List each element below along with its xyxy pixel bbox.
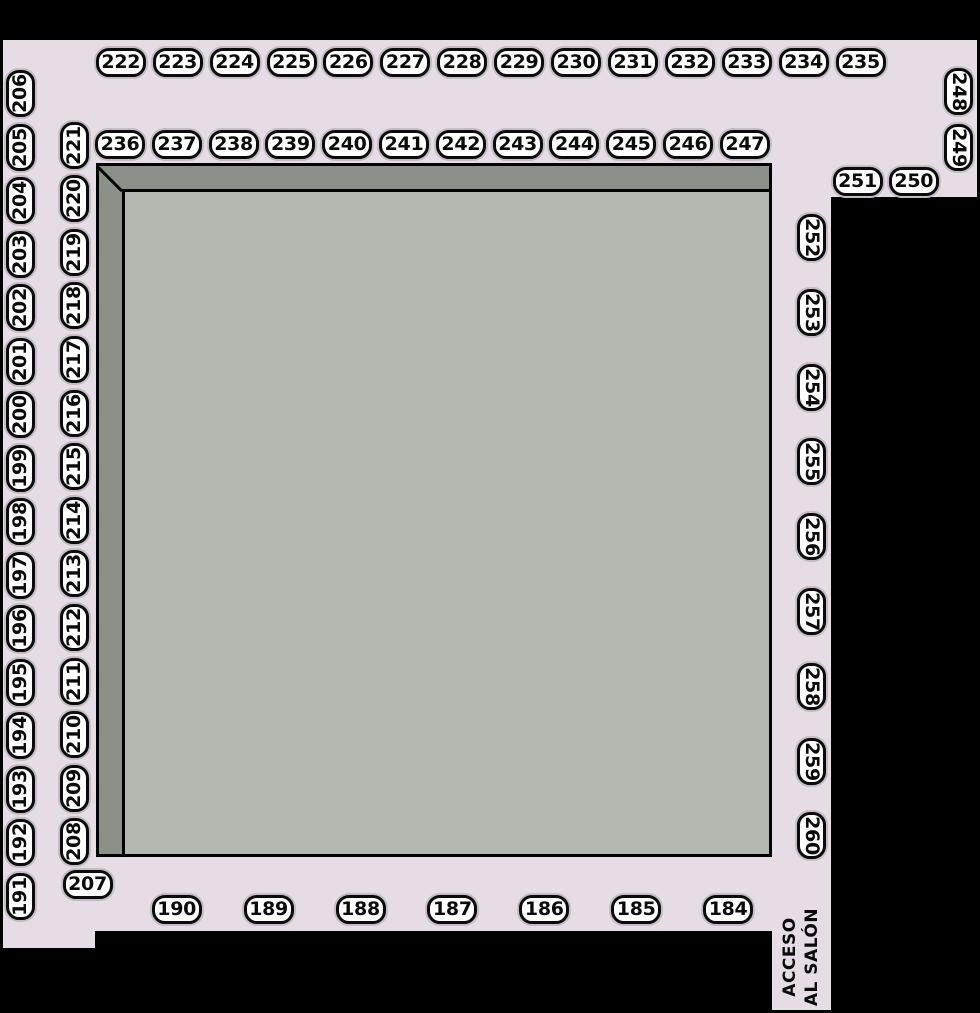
booth-212[interactable]: 212: [60, 604, 89, 651]
booth-241[interactable]: 241: [379, 130, 429, 159]
booth-label: 194: [11, 716, 30, 755]
booth-192[interactable]: 192: [6, 819, 35, 866]
access-label-line-1: ACCESO: [779, 897, 801, 1013]
booth-label: 257: [802, 592, 821, 631]
booth-200[interactable]: 200: [6, 391, 35, 438]
booth-260[interactable]: 260: [797, 812, 826, 859]
booth-252[interactable]: 252: [797, 214, 826, 261]
booth-label: 237: [157, 135, 196, 154]
booth-233[interactable]: 233: [722, 48, 772, 77]
booth-228[interactable]: 228: [437, 48, 487, 77]
booth-label: 216: [65, 394, 84, 433]
booth-label: 215: [65, 447, 84, 486]
booth-label: 229: [500, 53, 539, 72]
booth-236[interactable]: 236: [95, 130, 145, 159]
booth-188[interactable]: 188: [336, 895, 386, 924]
access-label-line-2: AL SALÓN: [801, 897, 823, 1013]
booth-250[interactable]: 250: [889, 167, 939, 196]
booth-label: 226: [329, 53, 368, 72]
central-hall-inner-area: [122, 189, 769, 854]
booth-234[interactable]: 234: [779, 48, 829, 77]
booth-label: 201: [11, 342, 30, 381]
booth-label: 214: [65, 501, 84, 540]
booth-label: 187: [433, 900, 472, 919]
booth-label: 202: [11, 288, 30, 327]
booth-label: 256: [802, 517, 821, 556]
booth-label: 186: [525, 900, 564, 919]
booth-194[interactable]: 194: [6, 712, 35, 759]
booth-189[interactable]: 189: [244, 895, 294, 924]
booth-257[interactable]: 257: [797, 588, 826, 635]
booth-203[interactable]: 203: [6, 231, 35, 278]
booth-label: 185: [617, 900, 656, 919]
booth-247[interactable]: 247: [720, 130, 770, 159]
booth-214[interactable]: 214: [60, 497, 89, 544]
booth-245[interactable]: 245: [606, 130, 656, 159]
booth-220[interactable]: 220: [60, 175, 89, 222]
booth-label: 198: [11, 502, 30, 541]
booth-219[interactable]: 219: [60, 229, 89, 276]
booth-label: 225: [272, 53, 311, 72]
booth-246[interactable]: 246: [663, 130, 713, 159]
booth-label: 228: [443, 53, 482, 72]
booth-label: 248: [949, 72, 968, 111]
booth-label: 222: [101, 53, 140, 72]
booth-label: 221: [65, 126, 84, 165]
booth-207[interactable]: 207: [63, 870, 113, 899]
booth-label: 232: [670, 53, 709, 72]
booth-259[interactable]: 259: [797, 738, 826, 785]
booth-label: 230: [557, 53, 596, 72]
booth-label: 208: [65, 822, 84, 861]
booth-208[interactable]: 208: [60, 818, 89, 865]
booth-label: 196: [11, 609, 30, 648]
booth-label: 189: [249, 900, 288, 919]
booth-197[interactable]: 197: [6, 552, 35, 599]
booth-221[interactable]: 221: [60, 122, 89, 169]
booth-label: 192: [11, 823, 30, 862]
booth-205[interactable]: 205: [6, 124, 35, 171]
booth-label: 255: [802, 443, 821, 482]
booth-label: 184: [709, 900, 748, 919]
booth-244[interactable]: 244: [549, 130, 599, 159]
booth-label: 238: [214, 135, 253, 154]
booth-210[interactable]: 210: [60, 711, 89, 758]
booth-230[interactable]: 230: [551, 48, 601, 77]
booth-label: 207: [68, 875, 107, 894]
booth-186[interactable]: 186: [519, 895, 569, 924]
booth-225[interactable]: 225: [267, 48, 317, 77]
booth-label: 191: [11, 877, 30, 916]
booth-label: 249: [949, 128, 968, 167]
booth-label: 241: [385, 135, 424, 154]
booth-193[interactable]: 193: [6, 766, 35, 813]
booth-label: 243: [498, 135, 537, 154]
booth-label: 252: [802, 218, 821, 257]
booth-227[interactable]: 227: [380, 48, 430, 77]
booth-label: 219: [65, 233, 84, 272]
booth-label: 245: [612, 135, 651, 154]
floor-plan: ACCESO AL SALÓN 222223224225226227228229…: [0, 0, 980, 1013]
booth-201[interactable]: 201: [6, 338, 35, 385]
booth-label: 242: [441, 135, 480, 154]
booth-231[interactable]: 231: [608, 48, 658, 77]
booth-229[interactable]: 229: [494, 48, 544, 77]
booth-label: 200: [11, 395, 30, 434]
booth-187[interactable]: 187: [427, 895, 477, 924]
booth-196[interactable]: 196: [6, 605, 35, 652]
booth-label: 195: [11, 663, 30, 702]
booth-label: 254: [802, 368, 821, 407]
booth-218[interactable]: 218: [60, 282, 89, 329]
booth-label: 218: [65, 286, 84, 325]
booth-label: 250: [894, 172, 933, 191]
booth-255[interactable]: 255: [797, 438, 826, 485]
booth-206[interactable]: 206: [6, 70, 35, 117]
booth-label: 231: [614, 53, 653, 72]
booth-235[interactable]: 235: [836, 48, 886, 77]
booth-238[interactable]: 238: [209, 130, 259, 159]
central-hall-area: [96, 163, 772, 857]
booth-254[interactable]: 254: [797, 364, 826, 411]
booth-label: 217: [65, 340, 84, 379]
booth-204[interactable]: 204: [6, 177, 35, 224]
booth-195[interactable]: 195: [6, 659, 35, 706]
booth-243[interactable]: 243: [493, 130, 543, 159]
booth-label: 247: [725, 135, 764, 154]
booth-label: 190: [157, 900, 196, 919]
booth-label: 224: [215, 53, 254, 72]
booth-248[interactable]: 248: [944, 68, 973, 115]
booth-211[interactable]: 211: [60, 658, 89, 705]
booth-label: 251: [838, 172, 877, 191]
corner-bevel-line: [97, 166, 123, 192]
booth-label: 246: [669, 135, 708, 154]
booth-label: 259: [802, 742, 821, 781]
booth-label: 204: [11, 181, 30, 220]
booth-217[interactable]: 217: [60, 336, 89, 383]
booth-label: 227: [386, 53, 425, 72]
booth-label: 213: [65, 554, 84, 593]
booth-191[interactable]: 191: [6, 873, 35, 920]
hall-access-label: ACCESO AL SALÓN: [778, 897, 824, 1013]
booth-184[interactable]: 184: [703, 895, 753, 924]
booth-249[interactable]: 249: [944, 124, 973, 171]
booth-label: 206: [11, 74, 30, 113]
booth-label: 223: [158, 53, 197, 72]
booth-237[interactable]: 237: [152, 130, 202, 159]
booth-label: 193: [11, 770, 30, 809]
booth-label: 258: [802, 667, 821, 706]
booth-label: 233: [727, 53, 766, 72]
booth-224[interactable]: 224: [210, 48, 260, 77]
booth-label: 239: [271, 135, 310, 154]
booth-209[interactable]: 209: [60, 765, 89, 812]
booth-213[interactable]: 213: [60, 550, 89, 597]
booth-label: 220: [65, 179, 84, 218]
booth-label: 212: [65, 608, 84, 647]
booth-label: 234: [784, 53, 823, 72]
booth-239[interactable]: 239: [265, 130, 315, 159]
booth-label: 235: [841, 53, 880, 72]
booth-223[interactable]: 223: [153, 48, 203, 77]
booth-258[interactable]: 258: [797, 663, 826, 710]
booth-label: 260: [802, 817, 821, 856]
booth-216[interactable]: 216: [60, 390, 89, 437]
booth-label: 203: [11, 235, 30, 274]
booth-242[interactable]: 242: [436, 130, 486, 159]
booth-202[interactable]: 202: [6, 284, 35, 331]
booth-215[interactable]: 215: [60, 443, 89, 490]
booth-256[interactable]: 256: [797, 513, 826, 560]
booth-222[interactable]: 222: [96, 48, 146, 77]
booth-label: 205: [11, 128, 30, 167]
booth-251[interactable]: 251: [833, 167, 883, 196]
booth-label: 236: [101, 135, 140, 154]
booth-label: 244: [555, 135, 594, 154]
booth-label: 253: [802, 293, 821, 332]
booth-label: 240: [328, 135, 367, 154]
booth-199[interactable]: 199: [6, 445, 35, 492]
booth-190[interactable]: 190: [152, 895, 202, 924]
booth-label: 199: [11, 449, 30, 488]
booth-185[interactable]: 185: [611, 895, 661, 924]
booth-label: 211: [65, 662, 84, 701]
booth-226[interactable]: 226: [323, 48, 373, 77]
booth-label: 197: [11, 556, 30, 595]
booth-232[interactable]: 232: [665, 48, 715, 77]
booth-label: 188: [341, 900, 380, 919]
booth-253[interactable]: 253: [797, 289, 826, 336]
booth-label: 209: [65, 769, 84, 808]
booth-240[interactable]: 240: [322, 130, 372, 159]
booth-label: 210: [65, 715, 84, 754]
booth-198[interactable]: 198: [6, 498, 35, 545]
